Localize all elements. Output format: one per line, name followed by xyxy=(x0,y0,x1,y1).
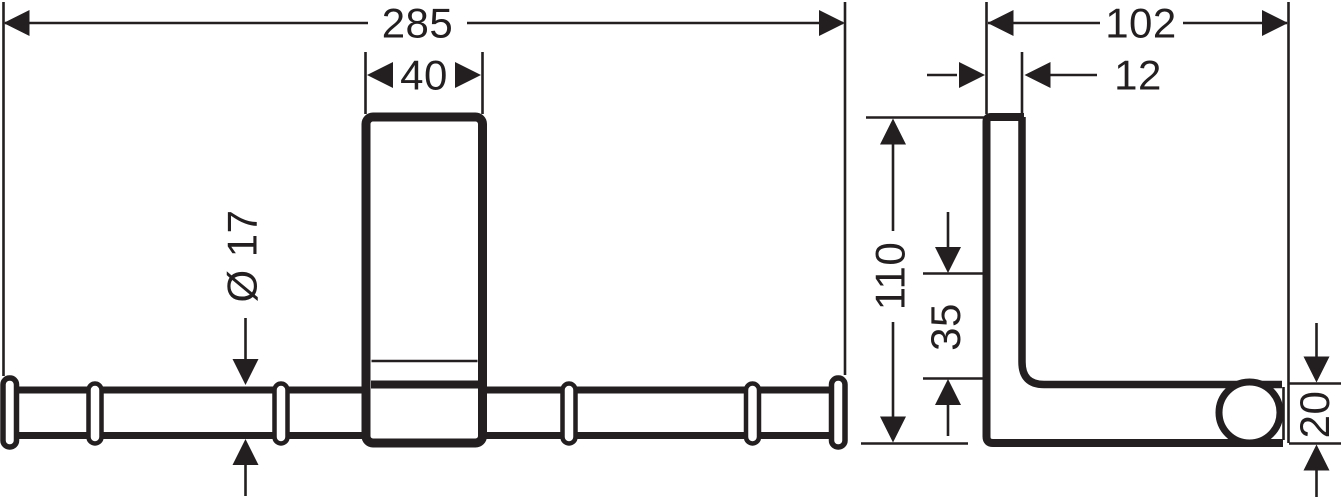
arrowhead-down xyxy=(935,247,961,273)
dim-plate-width: 40 xyxy=(366,52,483,115)
dim-overall-height-label: 110 xyxy=(867,242,914,310)
arrowhead-left xyxy=(988,10,1014,36)
end-cap-left xyxy=(3,378,17,447)
dim-end-height-label: 20 xyxy=(1291,391,1338,439)
arrowhead-up xyxy=(1304,445,1330,471)
dim-arm-offset: 35 xyxy=(922,212,986,436)
arrowhead-left xyxy=(367,62,393,88)
arrowhead-down xyxy=(233,359,259,385)
arrowhead-down xyxy=(880,417,906,443)
dim-overall-height: 110 xyxy=(861,118,987,444)
dim-arm-offset-label: 35 xyxy=(922,303,969,351)
dim-plate-thickness: 12 xyxy=(927,52,1162,114)
arrowhead-right xyxy=(455,62,481,88)
mounting-plate xyxy=(366,117,483,443)
arrowhead-down xyxy=(1304,357,1330,383)
arrowhead-left xyxy=(1025,62,1051,88)
arrowhead-up xyxy=(935,379,961,405)
arrowhead-right xyxy=(959,62,985,88)
bracket-profile xyxy=(987,117,1284,443)
arrowhead-right xyxy=(819,10,845,36)
dim-plate-width-label: 40 xyxy=(400,52,448,99)
dim-end-height: 20 xyxy=(1289,323,1341,497)
bar-ring xyxy=(746,384,759,444)
dim-overall-depth-label: 102 xyxy=(1105,0,1177,47)
bar-cross-section-circle xyxy=(1219,382,1280,443)
dim-bar-diameter: Ø 17 xyxy=(219,209,266,496)
mounting-plate-outline xyxy=(366,117,483,443)
end-cap-right xyxy=(832,378,846,447)
dim-plate-thickness-label: 12 xyxy=(1114,52,1162,99)
side-view: 102 12 110 35 xyxy=(861,0,1341,497)
technical-drawing: 285 40 Ø 17 xyxy=(0,0,1341,498)
arrowhead-left xyxy=(4,10,30,36)
arrowhead-right xyxy=(1262,10,1288,36)
bar-ring xyxy=(89,384,102,444)
drawing-canvas: 285 40 Ø 17 xyxy=(0,0,1341,498)
dim-overall-width-label: 285 xyxy=(382,0,454,47)
front-view: 285 40 Ø 17 xyxy=(3,0,845,496)
dim-bar-diameter-label: Ø 17 xyxy=(219,209,266,302)
arrowhead-up xyxy=(880,119,906,145)
bracket-inner-edge xyxy=(1022,117,1282,385)
bar-ring xyxy=(275,384,288,444)
bar-ring xyxy=(563,384,576,444)
arrowhead-up xyxy=(233,439,259,465)
